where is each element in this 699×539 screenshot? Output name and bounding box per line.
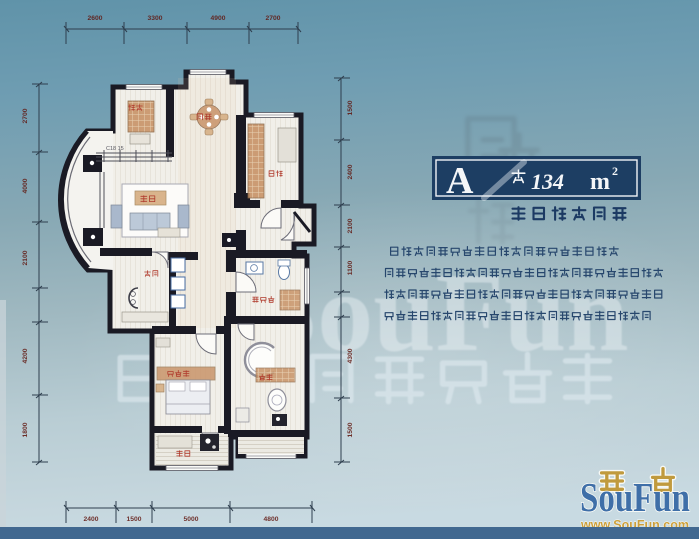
svg-text:5000: 5000	[184, 516, 199, 523]
svg-text:C18 15: C18 15	[106, 146, 124, 152]
svg-text:4200: 4200	[22, 348, 29, 363]
svg-text:3300: 3300	[148, 15, 163, 22]
svg-text:2700: 2700	[266, 15, 281, 22]
svg-text:2400: 2400	[347, 164, 354, 179]
svg-text:134: 134	[531, 169, 564, 194]
svg-text:1100: 1100	[347, 260, 354, 275]
svg-text:4800: 4800	[264, 516, 279, 523]
svg-text:2700: 2700	[22, 108, 29, 123]
svg-text:1500: 1500	[347, 100, 354, 115]
svg-text:m: m	[590, 169, 610, 195]
svg-text:2: 2	[612, 164, 618, 178]
svg-text:2100: 2100	[22, 250, 29, 265]
svg-text:SouFun: SouFun	[580, 474, 690, 520]
svg-text:4900: 4900	[211, 15, 226, 22]
svg-text:2600: 2600	[88, 15, 103, 22]
svg-text:4300: 4300	[347, 348, 354, 363]
svg-text:1800: 1800	[22, 422, 29, 437]
svg-text:2100: 2100	[347, 218, 354, 233]
svg-text:1500: 1500	[127, 516, 142, 523]
svg-text:1500: 1500	[347, 422, 354, 437]
svg-text:4000: 4000	[22, 178, 29, 193]
svg-text:2400: 2400	[84, 516, 99, 523]
svg-text:A: A	[446, 160, 474, 202]
